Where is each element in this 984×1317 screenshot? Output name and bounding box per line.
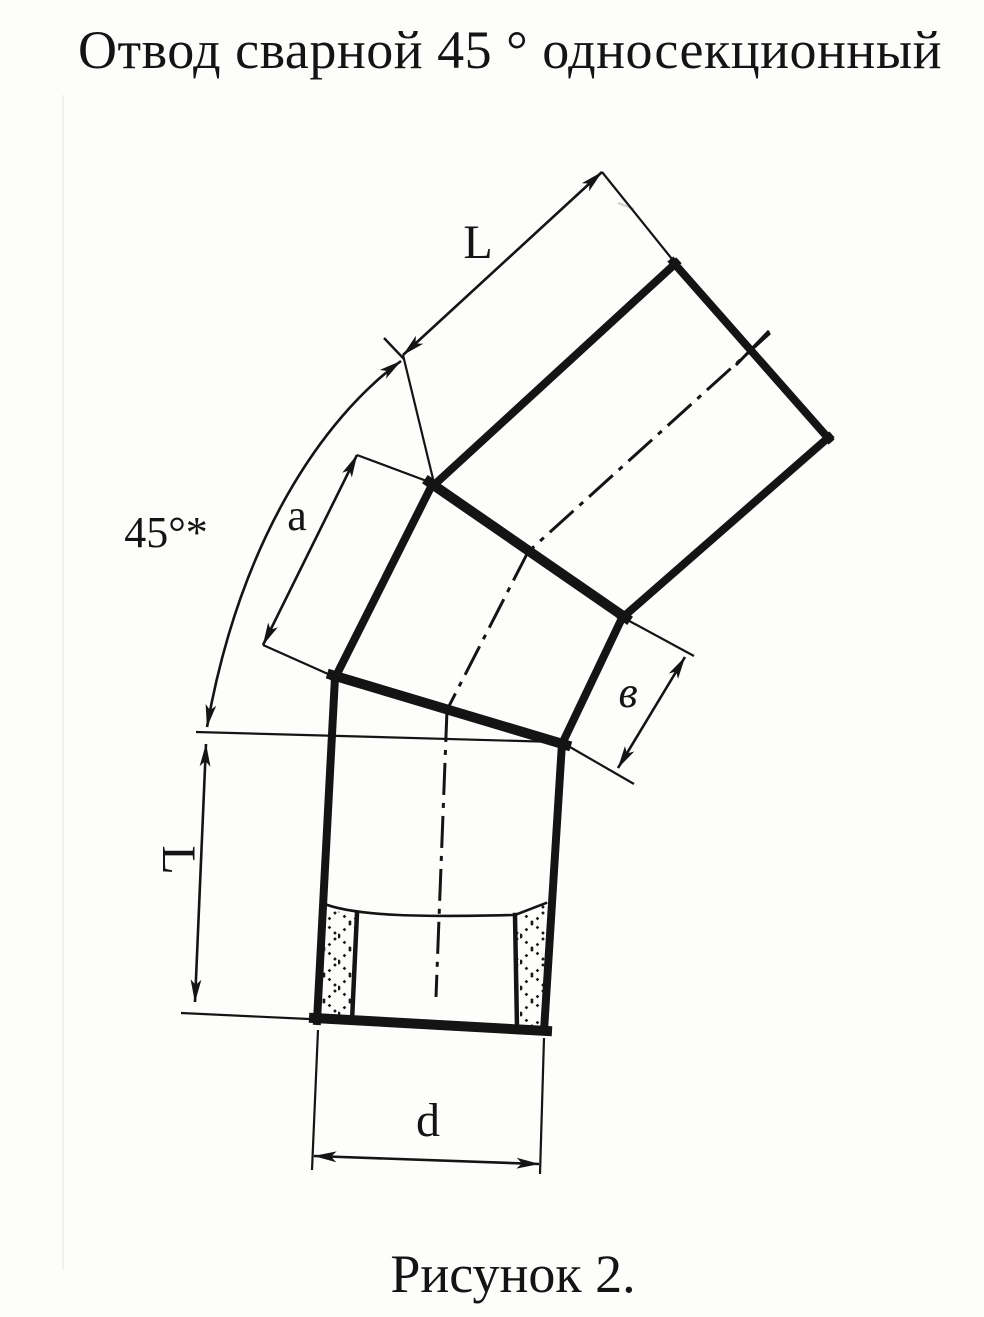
lower-pipe-right-edge: [544, 743, 562, 1031]
ext-line-a-bottom: [263, 645, 337, 678]
upper-pipe-right-edge: [622, 437, 829, 618]
middle-pipe-left-edge: [335, 483, 433, 678]
dim-line-d: [314, 1156, 539, 1164]
ext-line-bottom-horizontal: [181, 1013, 309, 1019]
drawing-title: Отвод сварной 45 ° односекционный: [78, 20, 942, 80]
bore-wall-right: [515, 915, 517, 1028]
dim-line-a: [263, 455, 357, 645]
angle-arc: [207, 361, 401, 727]
dim-upper-length: [384, 172, 676, 487]
centerline-middle: [447, 552, 528, 710]
dim-line-upper-L: [403, 172, 602, 355]
figure-caption: Рисунок 2.: [390, 1244, 635, 1304]
centerline-lower: [436, 710, 447, 997]
ext-line-b-top: [622, 617, 694, 656]
elbow-drawing-canvas: Отвод сварной 45 ° односекционный: [0, 0, 984, 1317]
dim-lower-length: [181, 732, 557, 1019]
weld-seam-upper: [429, 482, 626, 618]
label-segment-a: a: [287, 491, 307, 540]
label-lower-length: L: [152, 845, 205, 874]
middle-pipe-right-edge: [562, 616, 623, 744]
pipe-elbow: [314, 262, 829, 1031]
ext-line-d-left: [312, 1030, 318, 1170]
dim-bend-angle: [207, 361, 401, 727]
ext-line-weld-plane: [403, 355, 435, 487]
weld-seam-lower: [332, 675, 566, 745]
ext-line-end-face: [602, 172, 676, 264]
dim-tick: [384, 338, 404, 359]
wall-hatch-right: [516, 904, 546, 1029]
label-diameter: d: [416, 1094, 440, 1147]
label-bend-angle: 45°*: [124, 508, 208, 557]
upper-pipe-section: [433, 262, 829, 618]
ext-line-a-top: [357, 455, 432, 483]
ext-line-b-bottom: [563, 743, 634, 784]
pipe-wall-sections: [319, 903, 546, 1029]
label-upper-length: L: [463, 216, 492, 269]
dimension-labels: L 45°* a в L d: [124, 216, 637, 1147]
scanned-drawing-page: Отвод сварной 45 ° односекционный: [0, 0, 984, 1317]
ext-line-weld-horizontal: [196, 732, 557, 742]
ext-line-d-right: [540, 1038, 544, 1174]
label-segment-b: в: [618, 668, 637, 717]
